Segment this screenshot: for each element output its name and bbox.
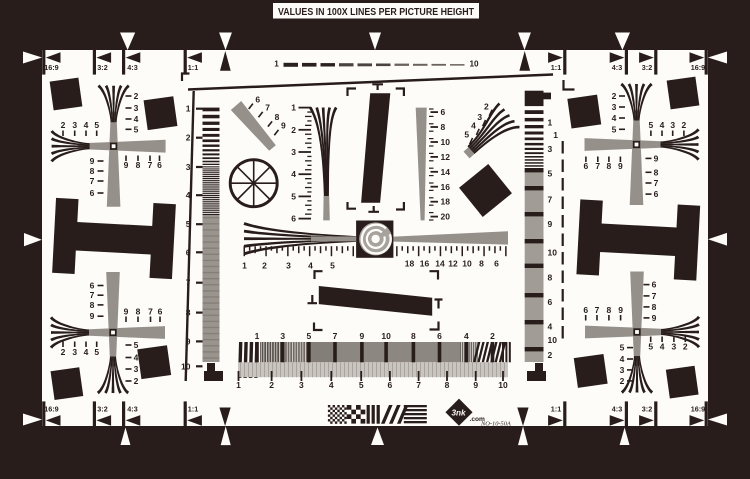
- svg-text:9: 9: [90, 311, 95, 321]
- svg-text:7: 7: [148, 307, 153, 317]
- svg-text:NO-10-50A: NO-10-50A: [480, 421, 511, 428]
- svg-text:10: 10: [548, 247, 558, 257]
- svg-text:3: 3: [72, 347, 77, 357]
- svg-text:2: 2: [548, 350, 553, 360]
- svg-text:4: 4: [84, 120, 89, 130]
- svg-text:10: 10: [469, 60, 479, 69]
- svg-text:16:9: 16:9: [44, 63, 58, 72]
- svg-text:9: 9: [548, 219, 553, 229]
- svg-text:8: 8: [136, 307, 141, 317]
- svg-text:2: 2: [484, 102, 489, 112]
- svg-text:4: 4: [134, 114, 139, 124]
- svg-text:7: 7: [90, 176, 95, 186]
- svg-text:5: 5: [612, 124, 617, 134]
- svg-text:10: 10: [441, 137, 451, 147]
- svg-text:2: 2: [269, 380, 274, 390]
- svg-text:7: 7: [333, 331, 338, 341]
- svg-text:5: 5: [548, 168, 553, 178]
- svg-text:8: 8: [607, 161, 612, 171]
- svg-text:3: 3: [477, 112, 482, 122]
- svg-text:9: 9: [90, 156, 95, 166]
- svg-text:6: 6: [158, 307, 163, 317]
- svg-text:4: 4: [308, 261, 313, 271]
- svg-text:3:2: 3:2: [97, 63, 107, 72]
- svg-text:1: 1: [255, 331, 260, 341]
- svg-text:6: 6: [255, 94, 260, 104]
- svg-text:8: 8: [90, 300, 95, 310]
- svg-text:5: 5: [620, 343, 625, 353]
- svg-text:8: 8: [607, 305, 612, 315]
- svg-text:7: 7: [416, 380, 421, 390]
- svg-text:6: 6: [90, 281, 95, 291]
- svg-text:6: 6: [654, 189, 659, 199]
- svg-text:3: 3: [612, 102, 617, 112]
- svg-text:10: 10: [498, 380, 508, 390]
- svg-text:8: 8: [441, 122, 446, 132]
- svg-text:7: 7: [595, 305, 600, 315]
- svg-text:1:1: 1:1: [551, 405, 561, 414]
- svg-text:6: 6: [584, 161, 589, 171]
- svg-text:4: 4: [464, 331, 469, 341]
- svg-text:3: 3: [134, 103, 139, 113]
- svg-text:4: 4: [471, 121, 476, 131]
- svg-text:4: 4: [291, 169, 296, 179]
- svg-text:3: 3: [186, 162, 191, 172]
- svg-text:6: 6: [157, 160, 162, 170]
- svg-text:7: 7: [652, 291, 657, 301]
- svg-text:6: 6: [291, 214, 296, 224]
- svg-text:4:3: 4:3: [127, 405, 137, 414]
- svg-text:5: 5: [94, 347, 99, 357]
- svg-text:16:9: 16:9: [44, 405, 58, 414]
- svg-text:4: 4: [186, 190, 191, 200]
- svg-text:8: 8: [136, 160, 141, 170]
- svg-text:7: 7: [90, 290, 95, 300]
- svg-text:5: 5: [359, 380, 364, 390]
- svg-text:1: 1: [186, 104, 191, 114]
- svg-text:2: 2: [683, 342, 688, 352]
- svg-text:2: 2: [490, 331, 495, 341]
- svg-text:1: 1: [548, 118, 553, 128]
- svg-text:4: 4: [612, 113, 617, 123]
- svg-text:3: 3: [299, 380, 304, 390]
- svg-text:2: 2: [612, 91, 617, 101]
- svg-text:8: 8: [445, 380, 450, 390]
- svg-text:10: 10: [381, 331, 391, 341]
- svg-text:2: 2: [134, 91, 139, 101]
- svg-text:3: 3: [72, 120, 77, 130]
- svg-text:3: 3: [286, 261, 291, 271]
- svg-text:14: 14: [441, 167, 451, 177]
- svg-text:4: 4: [134, 353, 139, 363]
- svg-text:3: 3: [620, 365, 625, 375]
- svg-text:8: 8: [275, 112, 280, 122]
- svg-text:7: 7: [548, 195, 553, 205]
- svg-text:8: 8: [186, 308, 191, 318]
- svg-text:5: 5: [649, 120, 654, 130]
- svg-text:1:1: 1:1: [188, 405, 198, 414]
- svg-text:7: 7: [654, 178, 659, 188]
- svg-text:4: 4: [84, 347, 89, 357]
- svg-text:4:3: 4:3: [612, 405, 622, 414]
- svg-text:1: 1: [236, 380, 241, 390]
- svg-text:7: 7: [595, 161, 600, 171]
- svg-text:20: 20: [441, 212, 451, 222]
- svg-text:9: 9: [186, 336, 191, 346]
- svg-text:VALUES IN 100X LINES PER PICTU: VALUES IN 100X LINES PER PICTURE HEIGHT: [278, 7, 475, 18]
- svg-text:1: 1: [553, 130, 558, 140]
- svg-text:4: 4: [660, 120, 665, 130]
- svg-text:16: 16: [420, 259, 430, 269]
- svg-text:16:9: 16:9: [691, 405, 705, 414]
- svg-text:5: 5: [330, 261, 335, 271]
- svg-text:4: 4: [620, 354, 625, 364]
- svg-text:2: 2: [291, 125, 296, 135]
- svg-text:9: 9: [618, 305, 623, 315]
- svg-text:8: 8: [411, 331, 416, 341]
- svg-text:6: 6: [90, 188, 95, 198]
- svg-text:3: 3: [548, 144, 553, 154]
- svg-text:18: 18: [405, 259, 415, 269]
- svg-text:16: 16: [441, 182, 451, 192]
- svg-text:6: 6: [186, 247, 191, 257]
- svg-text:1:1: 1:1: [188, 63, 198, 72]
- svg-text:16:9: 16:9: [691, 63, 705, 72]
- svg-text:9: 9: [654, 153, 659, 163]
- svg-text:5: 5: [94, 120, 99, 130]
- svg-text:2: 2: [262, 261, 267, 271]
- svg-text:9: 9: [618, 161, 623, 171]
- svg-text:5: 5: [464, 130, 469, 140]
- svg-text:5: 5: [307, 331, 312, 341]
- svg-text:8: 8: [652, 302, 657, 312]
- svg-text:8: 8: [548, 273, 553, 283]
- svg-text:2: 2: [682, 120, 687, 130]
- svg-text:6: 6: [494, 259, 499, 269]
- svg-text:5: 5: [648, 342, 653, 352]
- svg-text:6: 6: [437, 331, 442, 341]
- svg-text:8: 8: [479, 259, 484, 269]
- svg-text:5: 5: [134, 124, 139, 134]
- svg-text:18: 18: [441, 197, 451, 207]
- svg-text:3nk: 3nk: [451, 409, 466, 418]
- svg-text:3:2: 3:2: [642, 405, 652, 414]
- svg-text:5: 5: [134, 340, 139, 350]
- svg-text:4:3: 4:3: [612, 63, 622, 72]
- svg-text:1: 1: [291, 103, 296, 113]
- svg-text:4:3: 4:3: [127, 63, 137, 72]
- svg-text:8: 8: [90, 166, 95, 176]
- svg-text:5: 5: [186, 219, 191, 229]
- svg-text:10: 10: [462, 259, 472, 269]
- svg-text:10: 10: [548, 335, 558, 345]
- svg-text:3: 3: [291, 147, 296, 157]
- svg-text:9: 9: [124, 160, 129, 170]
- svg-text:6: 6: [441, 107, 446, 117]
- svg-text:4: 4: [548, 321, 553, 331]
- svg-text:9: 9: [360, 331, 365, 341]
- svg-text:9: 9: [652, 313, 657, 323]
- svg-text:9: 9: [281, 121, 286, 131]
- svg-text:1:1: 1:1: [551, 63, 561, 72]
- svg-text:3: 3: [670, 120, 675, 130]
- svg-text:6: 6: [583, 305, 588, 315]
- svg-text:2: 2: [61, 120, 66, 130]
- svg-text:12: 12: [441, 152, 451, 162]
- svg-text:14: 14: [435, 259, 445, 269]
- svg-text:7: 7: [148, 160, 153, 170]
- svg-text:1: 1: [274, 60, 279, 69]
- svg-text:5: 5: [291, 191, 296, 201]
- svg-text:9: 9: [124, 307, 129, 317]
- svg-text:3: 3: [672, 342, 677, 352]
- svg-text:3: 3: [280, 331, 285, 341]
- svg-text:7: 7: [186, 278, 191, 288]
- svg-text:3:2: 3:2: [97, 405, 107, 414]
- svg-text:12: 12: [448, 259, 458, 269]
- svg-text:4: 4: [660, 342, 665, 352]
- svg-text:9: 9: [473, 380, 478, 390]
- svg-text:3:2: 3:2: [642, 63, 652, 72]
- svg-text:2: 2: [620, 376, 625, 386]
- svg-text:6: 6: [548, 297, 553, 307]
- svg-text:1: 1: [242, 261, 247, 271]
- svg-text:6: 6: [388, 380, 393, 390]
- svg-text:7: 7: [265, 103, 270, 113]
- svg-text:6: 6: [652, 280, 657, 290]
- svg-text:2: 2: [186, 133, 191, 143]
- svg-text:2: 2: [134, 376, 139, 386]
- svg-text:4: 4: [329, 380, 334, 390]
- svg-text:8: 8: [654, 167, 659, 177]
- svg-text:2: 2: [61, 347, 66, 357]
- svg-text:3: 3: [134, 364, 139, 374]
- svg-text:10: 10: [181, 361, 191, 371]
